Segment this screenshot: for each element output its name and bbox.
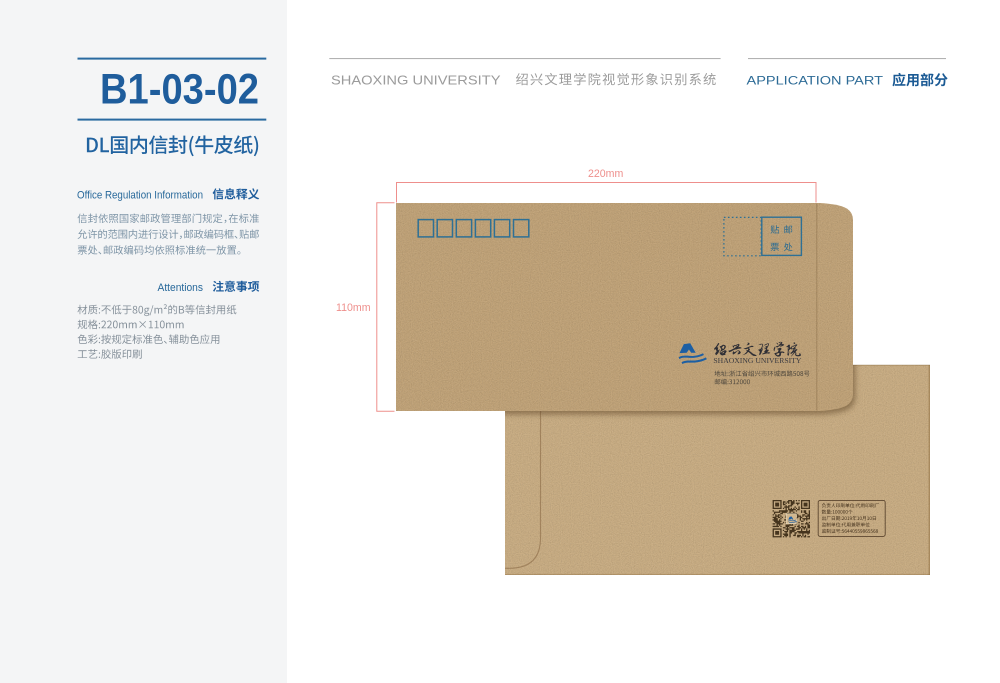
svg-text:SHAOXING UNIVERSITY: SHAOXING UNIVERSITY [713,358,801,365]
svg-text:220mm: 220mm [588,168,623,180]
svg-text:Attentions: Attentions [158,282,204,294]
svg-text:B1-03-02: B1-03-02 [100,67,259,114]
svg-text:SHAOXING UNIVERSITY: SHAOXING UNIVERSITY [331,72,501,87]
svg-text:110mm: 110mm [336,302,371,314]
svg-text:APPLICATION PART: APPLICATION PART [747,74,884,88]
svg-text:Office Regulation Information: Office Regulation Information [77,189,203,201]
